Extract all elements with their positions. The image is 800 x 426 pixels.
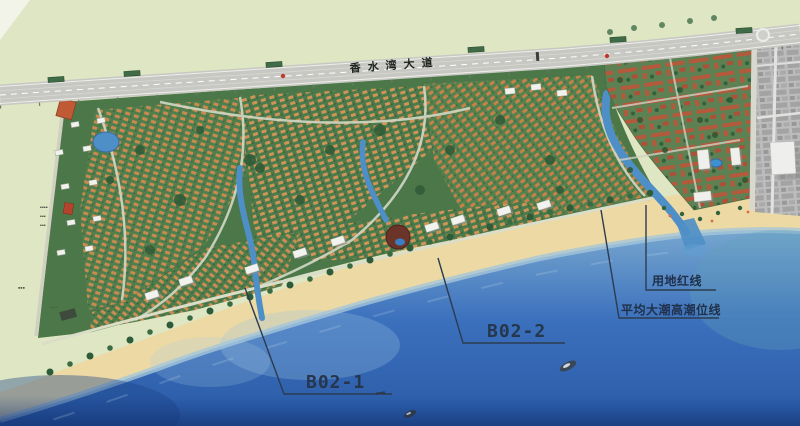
land-red-line-label: 用地红线 [651,273,702,288]
boundary-small-note: ▪▪▪▪ [50,305,58,311]
outlet-plume [683,244,707,256]
high-tide-line-label: 平均大潮高潮位线 [621,302,721,317]
road-marker-red [281,74,285,78]
road-gate-post [536,52,540,61]
pond [93,132,119,152]
entrance-note-line-2: ▪▪▪ [40,214,46,220]
parcel-label-b02-1: B02-1 [306,372,365,393]
master-plan-map: 香水湾大道 B02-1 B02-2 用地红线 平均大潮高潮位线 ▪▪▪ ▪▪▪▪… [0,0,800,426]
white-city-tower [770,141,796,174]
clubhouse-feature [386,225,410,249]
roundabout [757,29,769,41]
swimming-pool [710,159,722,167]
left-area-small-label: ▪▪▪ [18,285,25,292]
entrance-marker [63,202,74,214]
entrance-note-line-3: ▪▪▪ [40,223,46,229]
existing-city-gray [752,38,800,216]
parcel-label-b02-2: B02-2 [487,321,546,342]
master-plan-screenshot: 香水湾大道 B02-1 B02-2 用地红线 平均大潮高潮位线 ▪▪▪ ▪▪▪▪… [0,0,800,426]
road-marker-red-2 [605,54,609,58]
entrance-note-line-1: ▪▪▪▪ [40,205,48,211]
